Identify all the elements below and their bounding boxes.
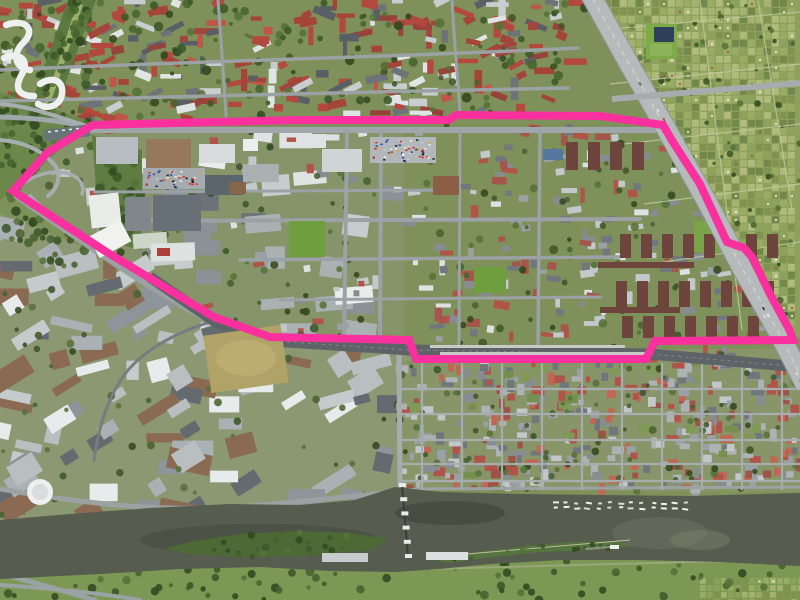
boat xyxy=(627,507,633,509)
retail-box-light xyxy=(199,144,235,163)
storage-tank-top xyxy=(32,484,48,500)
retail-box-2 xyxy=(300,134,326,148)
building-brown-east xyxy=(433,176,459,195)
ew-street-1 xyxy=(95,190,460,192)
ew-street-2 xyxy=(135,219,640,221)
store-mid xyxy=(125,197,151,231)
lock-chamber xyxy=(426,552,468,560)
boat xyxy=(48,131,51,133)
boat xyxy=(652,506,656,508)
warehouse-gray xyxy=(96,137,138,164)
boat xyxy=(598,502,602,504)
boat xyxy=(684,501,688,503)
boat xyxy=(672,507,678,509)
boat xyxy=(553,501,559,503)
warehouse-brown-roof xyxy=(146,139,191,168)
ns-street-3 xyxy=(459,131,460,347)
boat xyxy=(661,507,667,509)
motorboat xyxy=(610,545,619,549)
weir-pier xyxy=(404,540,411,544)
boat xyxy=(618,503,624,505)
boat xyxy=(69,129,72,131)
weir-pier xyxy=(400,497,407,501)
boat xyxy=(574,507,580,509)
town-main-west xyxy=(399,345,400,491)
boat xyxy=(629,501,633,503)
boat xyxy=(55,130,58,132)
aerial-photo-canvas xyxy=(0,0,800,600)
station-platform xyxy=(440,352,645,355)
retail-box-3 xyxy=(322,149,362,172)
superstore-dark xyxy=(153,195,201,231)
boat xyxy=(607,506,611,508)
retail-red-unit xyxy=(157,248,170,256)
weir-pier xyxy=(405,554,412,558)
boat xyxy=(619,506,623,508)
weir-pier xyxy=(399,483,406,487)
weir-pier xyxy=(401,511,408,515)
boat xyxy=(563,506,569,508)
barge xyxy=(322,553,368,562)
boat xyxy=(62,129,65,131)
sports-pitch-west xyxy=(289,221,325,257)
boat xyxy=(563,501,567,503)
aerial-map-screenshot xyxy=(0,0,800,600)
office-brown xyxy=(229,182,246,194)
weir-pier xyxy=(403,526,410,530)
sports-court-dark xyxy=(654,27,674,42)
region-town_south xyxy=(396,345,800,496)
station-platform xyxy=(430,345,625,348)
boat xyxy=(554,506,558,508)
ns-street-2 xyxy=(380,132,381,346)
blue-roof-units xyxy=(543,149,563,160)
boat xyxy=(661,503,667,505)
dirt-field-light xyxy=(216,340,276,376)
sports-field-inner xyxy=(650,44,672,56)
ns-street-4 xyxy=(538,130,540,350)
car-dealership-lot xyxy=(370,137,436,163)
retail-box-white xyxy=(243,139,258,151)
sports-pitch-mid xyxy=(474,267,506,293)
